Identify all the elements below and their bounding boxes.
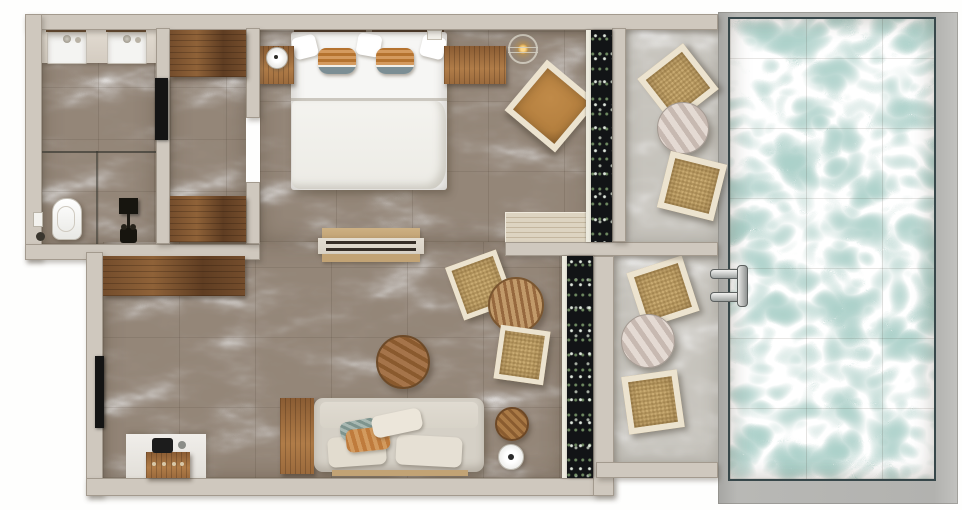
sofa-side-platform xyxy=(280,398,314,474)
bathroom-door xyxy=(155,78,168,140)
floor-lamp xyxy=(498,444,524,470)
chest-knob-4 xyxy=(180,462,184,466)
rattan-chair-lower xyxy=(493,325,550,385)
console-slot-2 xyxy=(326,248,416,251)
cushion-cream-right xyxy=(395,434,462,467)
shower-head xyxy=(119,198,138,214)
wall-switch xyxy=(427,30,442,40)
wall-terrace-left-lower xyxy=(593,256,614,496)
accent-cushion-left xyxy=(318,48,356,74)
closet-top xyxy=(170,30,246,77)
living-window-curtain xyxy=(567,256,593,478)
bedroom-window-curtain xyxy=(591,30,612,242)
sofa-base-strip xyxy=(332,470,468,476)
closet-bottom xyxy=(170,196,246,242)
valve-knob-left xyxy=(121,224,127,230)
wall-hall-bedroom-lower xyxy=(246,182,260,244)
faucet-right-handle xyxy=(135,37,141,43)
entry-door xyxy=(95,356,104,428)
console-body xyxy=(318,238,424,254)
accent-cushion-right xyxy=(376,48,414,74)
nightstand-right xyxy=(444,46,506,84)
valve-knob-right xyxy=(130,224,136,230)
console-slot-1 xyxy=(326,241,416,244)
storage-chest xyxy=(146,452,190,478)
floor-lamp-finial xyxy=(508,454,514,460)
sink-right xyxy=(107,32,147,64)
shower-valve xyxy=(120,228,137,243)
wall-terrace-bottom xyxy=(596,462,718,478)
desk-accessory xyxy=(178,441,186,449)
console-bottom-bar xyxy=(322,254,420,262)
bed-blanket xyxy=(292,101,446,189)
toilet-seat-line xyxy=(57,206,75,232)
ladder-stile xyxy=(737,265,748,307)
console-top-bar xyxy=(322,228,420,238)
gold-pendant-lamp xyxy=(508,34,538,64)
console-table xyxy=(318,228,424,262)
faucet-left xyxy=(63,35,71,43)
floor-plan-canvas xyxy=(0,0,962,510)
dining-table xyxy=(488,277,544,333)
chest-knob-3 xyxy=(172,462,176,466)
coffee-table xyxy=(376,335,430,389)
shower-glass-horizontal xyxy=(30,151,158,153)
sink-left xyxy=(47,32,87,64)
lounge-chair-4 xyxy=(621,369,685,434)
wall-bedroom-living xyxy=(505,242,718,256)
wall-shelf xyxy=(103,256,245,296)
wall-hall-bedroom-upper xyxy=(246,28,260,118)
shower-glass-vertical xyxy=(96,151,98,244)
faucet-right xyxy=(123,35,131,43)
round-table-2 xyxy=(621,314,675,368)
bed-pillow-left xyxy=(291,33,320,60)
table-lamp-finial xyxy=(274,55,278,59)
wall-bottom xyxy=(86,478,614,496)
faucet-left-handle xyxy=(75,37,81,43)
flush-plate xyxy=(33,212,43,227)
pool-water xyxy=(728,17,936,481)
round-table-1 xyxy=(657,102,709,154)
wood-floor-mat xyxy=(505,212,589,244)
chest-knob-2 xyxy=(162,462,166,466)
wall-terrace-left-upper xyxy=(612,28,626,242)
side-table xyxy=(495,407,529,441)
toilet-brush xyxy=(36,232,45,241)
camera-object xyxy=(152,438,173,453)
pool-ladder xyxy=(706,262,750,308)
double-bed xyxy=(291,32,447,190)
toilet xyxy=(52,198,80,244)
sofa xyxy=(314,398,484,472)
chest-knob-1 xyxy=(152,462,156,466)
